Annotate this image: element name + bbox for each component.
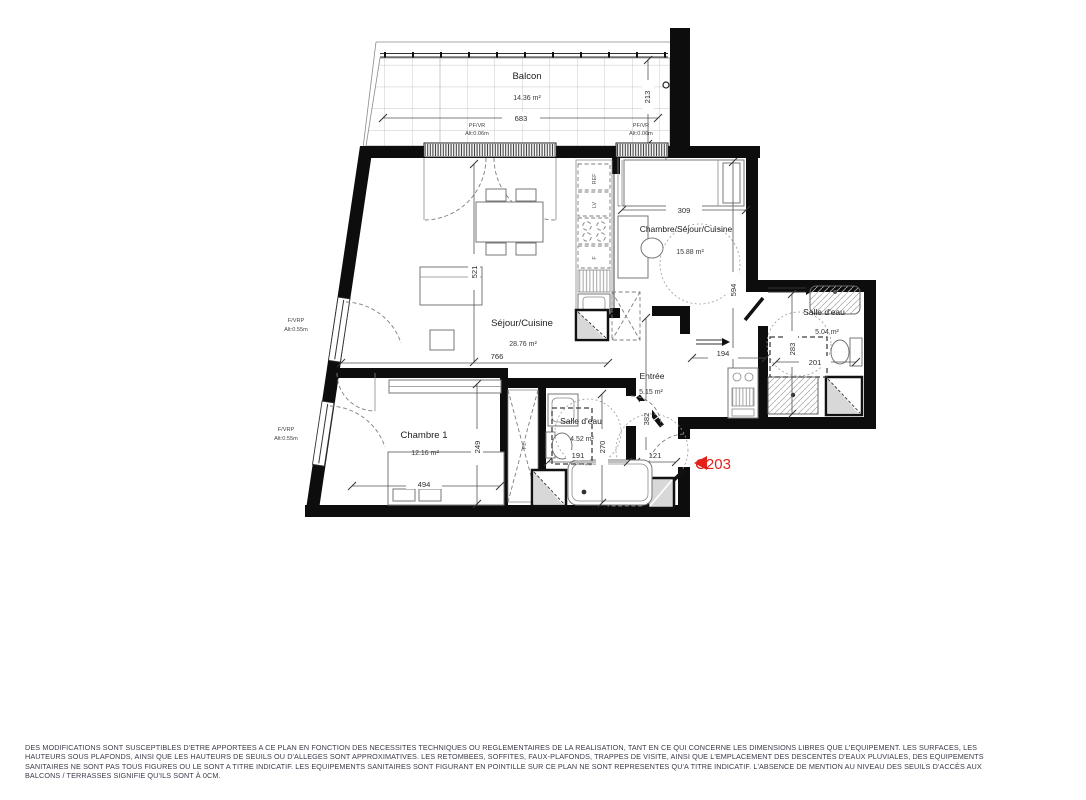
closet-label-2: PL xyxy=(522,443,528,450)
window-alt-pfvr-1: Alt:0.06m xyxy=(465,131,489,137)
sejour-cuisine: Séjour/Cuisine 28.76 m² 766 521 xyxy=(337,160,640,367)
unit-tag: C203 xyxy=(694,456,731,473)
sejour-area: 28.76 m² xyxy=(509,341,537,348)
side-table xyxy=(430,330,454,350)
sde-droite-dim-height: 283 xyxy=(788,343,797,356)
chambre-1: Chambre 1 12.16 m² 494 249 xyxy=(337,373,504,508)
chambre1-area: 12.16 m² xyxy=(411,450,439,457)
window-label-pfvr-1: PF/VR xyxy=(469,123,485,129)
disclaimer-block: DES MODIFICATIONS SONT SUSCEPTIBLES D'ET… xyxy=(25,743,1075,781)
chair xyxy=(641,238,663,258)
pillar xyxy=(670,28,690,152)
balcony-area: 14.36 m² xyxy=(513,95,541,102)
salle-eau-droite: 194 Salle d'eau 5.04 m² 283 201 xyxy=(688,285,862,418)
sejour-dim-height: 521 xyxy=(470,266,479,279)
chambre-sejour-dim-height: 594 xyxy=(729,284,738,297)
entree-area: 5.15 m² xyxy=(639,389,663,396)
chambre1-dim-width: 494 xyxy=(418,480,431,489)
sde-centre-dim-height: 270 xyxy=(598,441,607,454)
dining-table xyxy=(476,202,543,242)
shower-tray xyxy=(568,460,652,505)
disclaimer-line-2: HAUTEURS SOUS PLAFONDS, AINSI QUE LES HA… xyxy=(25,752,1075,761)
door-leaf xyxy=(745,298,763,320)
entree-label: Entrée xyxy=(639,371,664,381)
sde-centre-area: 4.52 m² xyxy=(570,436,594,443)
sejour-dim-width: 766 xyxy=(491,352,504,361)
entree-dim-width: 121 xyxy=(649,451,662,460)
chambre-sejour-area: 15.88 m² xyxy=(676,249,704,256)
sde-droite-label: Salle d'eau xyxy=(803,307,845,317)
dishwasher-label: LV xyxy=(592,202,598,209)
chambre-sejour-dim-width: 309 xyxy=(678,206,691,215)
disclaimer-line-3: SANITAIRES NE SONT PAS TOUS FIGURES OU L… xyxy=(25,762,1075,771)
balcony-label: Balcon xyxy=(512,71,541,82)
balcony: Balcon 14.36 m² 683 213 PF/VR Alt:0.06m … xyxy=(360,28,690,152)
corridor-dim: 194 xyxy=(717,349,730,358)
window-alt-fvrp-1: Alt:0.55m xyxy=(284,327,308,333)
disclaimer-line-4: BALCONS / TERRASSES SIGNIFIE QU'ILS SONT… xyxy=(25,771,1075,780)
downspout-icon xyxy=(663,82,669,88)
window-label-fvrp-1: F/VRP xyxy=(288,318,305,324)
sde-centre-label: Salle d'eau xyxy=(560,416,602,426)
pillow xyxy=(723,163,740,203)
balcony-dim-depth: 213 xyxy=(643,91,652,104)
chambre-sejour-label: Chambre/Séjour/Cuisine xyxy=(640,224,733,234)
toilet xyxy=(831,340,849,364)
fridge-label: REF xyxy=(592,173,598,184)
window-label-fvrp-2: F/VRP xyxy=(278,427,295,433)
appliance xyxy=(578,270,610,292)
window-label-pfvr-2: PF/VR xyxy=(633,123,649,129)
floor-plan-svg: Balcon 14.36 m² 683 213 PF/VR Alt:0.06m … xyxy=(0,0,1086,800)
window-alt-fvrp-2: Alt:0.55m xyxy=(274,436,298,442)
floor-plan-page: Balcon 14.36 m² 683 213 PF/VR Alt:0.06m … xyxy=(0,0,1086,800)
balcony-dim-width: 683 xyxy=(515,114,528,123)
chambre1-dim-height: 249 xyxy=(473,441,482,454)
sde-droite-area: 5.04 m² xyxy=(815,329,839,336)
radiator-arrow-icon xyxy=(722,338,730,346)
sejour-label: Séjour/Cuisine xyxy=(491,318,553,329)
chambre1-label: Chambre 1 xyxy=(401,430,448,441)
disclaimer-line-1: DES MODIFICATIONS SONT SUSCEPTIBLES D'ET… xyxy=(25,743,1075,752)
oven-label: F xyxy=(592,256,598,260)
window-alt-pfvr-2: Alt:0.06m xyxy=(629,131,653,137)
sde-centre-dim-width: 191 xyxy=(572,451,585,460)
unit-label: C203 xyxy=(695,456,731,473)
sde-droite-dim-width: 201 xyxy=(809,358,822,367)
